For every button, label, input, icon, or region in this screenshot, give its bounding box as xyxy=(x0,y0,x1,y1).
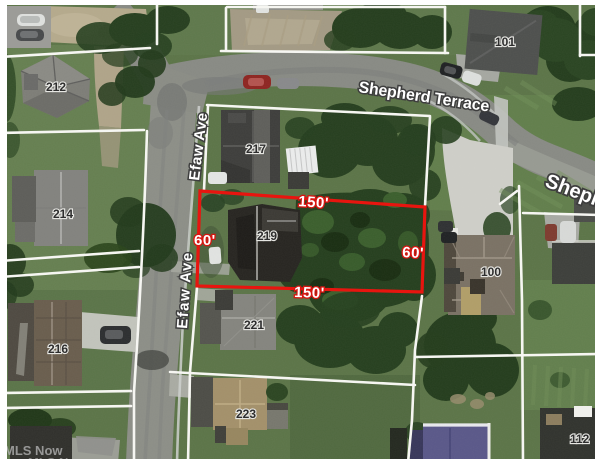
svg-text:112: 112 xyxy=(570,432,590,446)
svg-text:223: 223 xyxy=(236,407,256,421)
svg-text:150': 150' xyxy=(294,284,325,302)
svg-text:60': 60' xyxy=(402,244,425,262)
svg-text:217: 217 xyxy=(246,142,266,156)
svg-text:219: 219 xyxy=(257,229,277,243)
svg-text:216: 216 xyxy=(48,342,68,356)
svg-text:101: 101 xyxy=(495,35,515,49)
svg-text:60': 60' xyxy=(194,232,216,249)
svg-text:212: 212 xyxy=(46,80,66,94)
svg-text:150': 150' xyxy=(298,193,330,212)
svg-text:214: 214 xyxy=(53,207,73,221)
svg-text:221: 221 xyxy=(244,318,264,332)
svg-text:100: 100 xyxy=(481,265,501,279)
